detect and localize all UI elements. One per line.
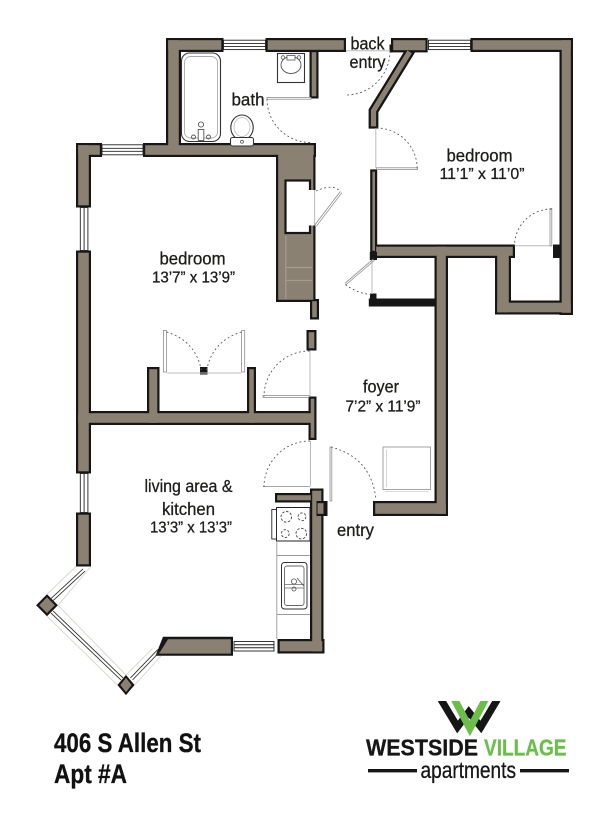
svg-text:bedroom: bedroom [160,249,226,269]
svg-text:Apt #A: Apt #A [54,759,127,789]
svg-text:bedroom: bedroom [447,146,513,166]
svg-text:kitchen: kitchen [162,499,215,519]
svg-text:entry: entry [337,520,374,540]
svg-text:bath: bath [232,90,265,110]
svg-text:406 S Allen St: 406 S Allen St [54,728,201,758]
svg-text:entry: entry [350,52,386,72]
svg-text:apartments: apartments [421,757,517,783]
svg-text:foyer: foyer [363,377,399,397]
svg-text:back: back [351,34,385,54]
svg-text:living area &: living area & [145,476,233,496]
svg-text:11’1” x 11’0”: 11’1” x 11’0” [440,166,525,183]
svg-text:7’2” x 11’9”: 7’2” x 11’9” [346,399,421,416]
svg-text:13’7” x 13’9”: 13’7” x 13’9” [152,270,235,287]
svg-text:13’3” x 13’3”: 13’3” x 13’3” [150,520,232,537]
